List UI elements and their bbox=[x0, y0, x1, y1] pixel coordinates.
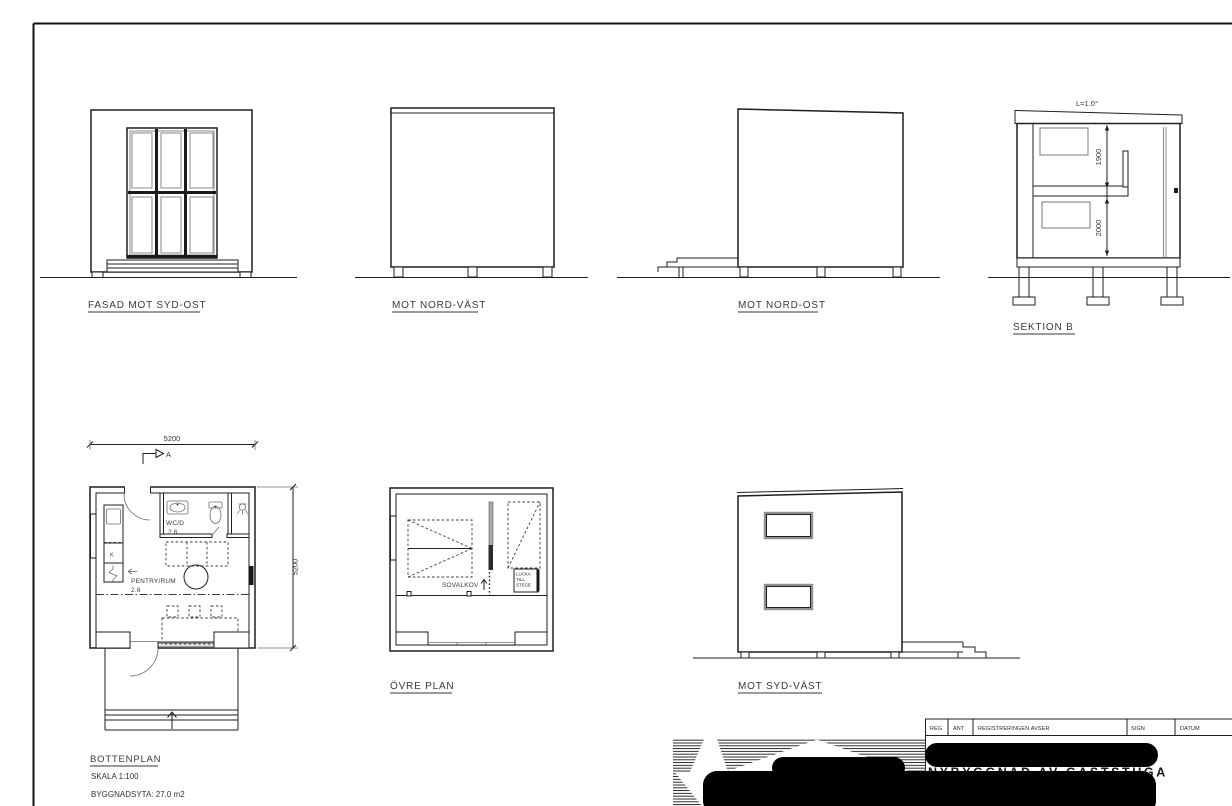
side-deck-steps bbox=[902, 642, 986, 658]
scale-label: SKALA 1:100 bbox=[91, 772, 139, 781]
window-left-wall bbox=[391, 516, 397, 560]
lucka-till-stege-box: LUCKA TILL STEGE bbox=[514, 569, 540, 592]
bottenplan: 5200 A bbox=[87, 434, 300, 799]
elevation-syd-vast: MOT SYD-VÄST bbox=[693, 489, 1020, 694]
svg-text:STEGE: STEGE bbox=[516, 583, 531, 588]
elevation-label-syd-vast: MOT SYD-VÄST bbox=[738, 680, 822, 692]
entry-door-bottom bbox=[130, 642, 158, 676]
door-handle bbox=[1174, 188, 1178, 193]
svg-text:LUCKA: LUCKA bbox=[516, 572, 531, 577]
elevation-label-nord-vast: MOT NORD-VÄST bbox=[392, 299, 486, 311]
dim-2000: 2000 bbox=[1094, 220, 1103, 237]
elevation-nord-vast: MOT NORD-VÄST bbox=[355, 108, 588, 312]
section-marker-a: A bbox=[143, 450, 171, 465]
redaction-bar-top bbox=[925, 743, 1158, 767]
dim-1900: 1900 bbox=[1094, 149, 1103, 166]
stege-bar bbox=[537, 570, 540, 592]
wall-pier-left bbox=[396, 632, 428, 645]
title-block: REG ANT REGISTRERINGEN AVSER SIGN DATUM … bbox=[673, 719, 1232, 806]
roof-band bbox=[1015, 111, 1182, 124]
elevation-label-nord-ost: MOT NORD-OST bbox=[738, 300, 826, 311]
ovre-plan-label: ÖVRE PLAN bbox=[390, 680, 454, 692]
section-b: L=1.0° 1900 2000 SEKTION B bbox=[988, 99, 1230, 334]
window-right-wall bbox=[249, 566, 254, 585]
mezzanine-slab bbox=[1033, 186, 1128, 196]
elevation-label-fasad-syd-ost: FASAD MOT SYD-OST bbox=[88, 300, 206, 311]
redaction-bar-bottom bbox=[703, 771, 1156, 806]
footing-right bbox=[240, 272, 251, 278]
section-label: SEKTION B bbox=[1013, 322, 1074, 333]
col-reg: REG bbox=[930, 726, 942, 732]
window-left-wall bbox=[91, 514, 97, 558]
footing-left bbox=[92, 272, 103, 278]
dimension-top: 5200 bbox=[87, 434, 258, 450]
col-registreringen-avser: REGISTRERINGEN AVSER bbox=[978, 726, 1050, 732]
pentry-area: 2.6 bbox=[131, 587, 141, 594]
roof-slope-label: L=1.0° bbox=[1076, 99, 1098, 108]
elevation-nord-ost: MOT NORD-OST bbox=[617, 109, 940, 312]
wc-label: WC/D bbox=[166, 520, 184, 527]
floor-slab bbox=[1017, 258, 1180, 267]
svg-text:TILL: TILL bbox=[516, 577, 525, 582]
col-datum: DATUM bbox=[1180, 726, 1200, 732]
fridge-label: K bbox=[110, 553, 114, 559]
wall-pier-right bbox=[214, 632, 249, 648]
area-label: BYGGNADSYTA: 27.0 m2 bbox=[91, 790, 185, 799]
architectural-drawing-sheet: FASAD MOT SYD-OST MOT NORD-VÄST MOT NORD… bbox=[0, 0, 1232, 806]
bottenplan-label: BOTTENPLAN bbox=[90, 754, 161, 765]
porch-deck bbox=[105, 648, 238, 730]
wall-pier-left bbox=[96, 632, 130, 648]
wc-area: 2.6 bbox=[168, 529, 178, 536]
entry-steps bbox=[107, 260, 238, 272]
svg-text:5200: 5200 bbox=[164, 434, 181, 443]
ladder bbox=[1123, 151, 1128, 187]
col-ant: ANT bbox=[953, 726, 965, 732]
ladder-top bbox=[489, 545, 494, 570]
svg-text:A: A bbox=[166, 450, 171, 459]
col-sign: SIGN bbox=[1131, 726, 1145, 732]
side-steps bbox=[658, 258, 738, 277]
elevation-fasad-syd-ost: FASAD MOT SYD-OST bbox=[40, 110, 297, 312]
loft-railing bbox=[489, 502, 493, 546]
pentry-label: PENTRY/RUM bbox=[131, 578, 176, 585]
posts-and-footings bbox=[1013, 267, 1183, 305]
wall-pier-right bbox=[515, 632, 547, 645]
dimension-right: 5200 bbox=[257, 484, 300, 651]
ovre-plan: SOVALKOV LUCKA TILL STEGE ÖVRE PLAN bbox=[390, 488, 553, 693]
sovalkov-label: SOVALKOV bbox=[442, 582, 479, 589]
svg-text:5200: 5200 bbox=[291, 559, 300, 576]
